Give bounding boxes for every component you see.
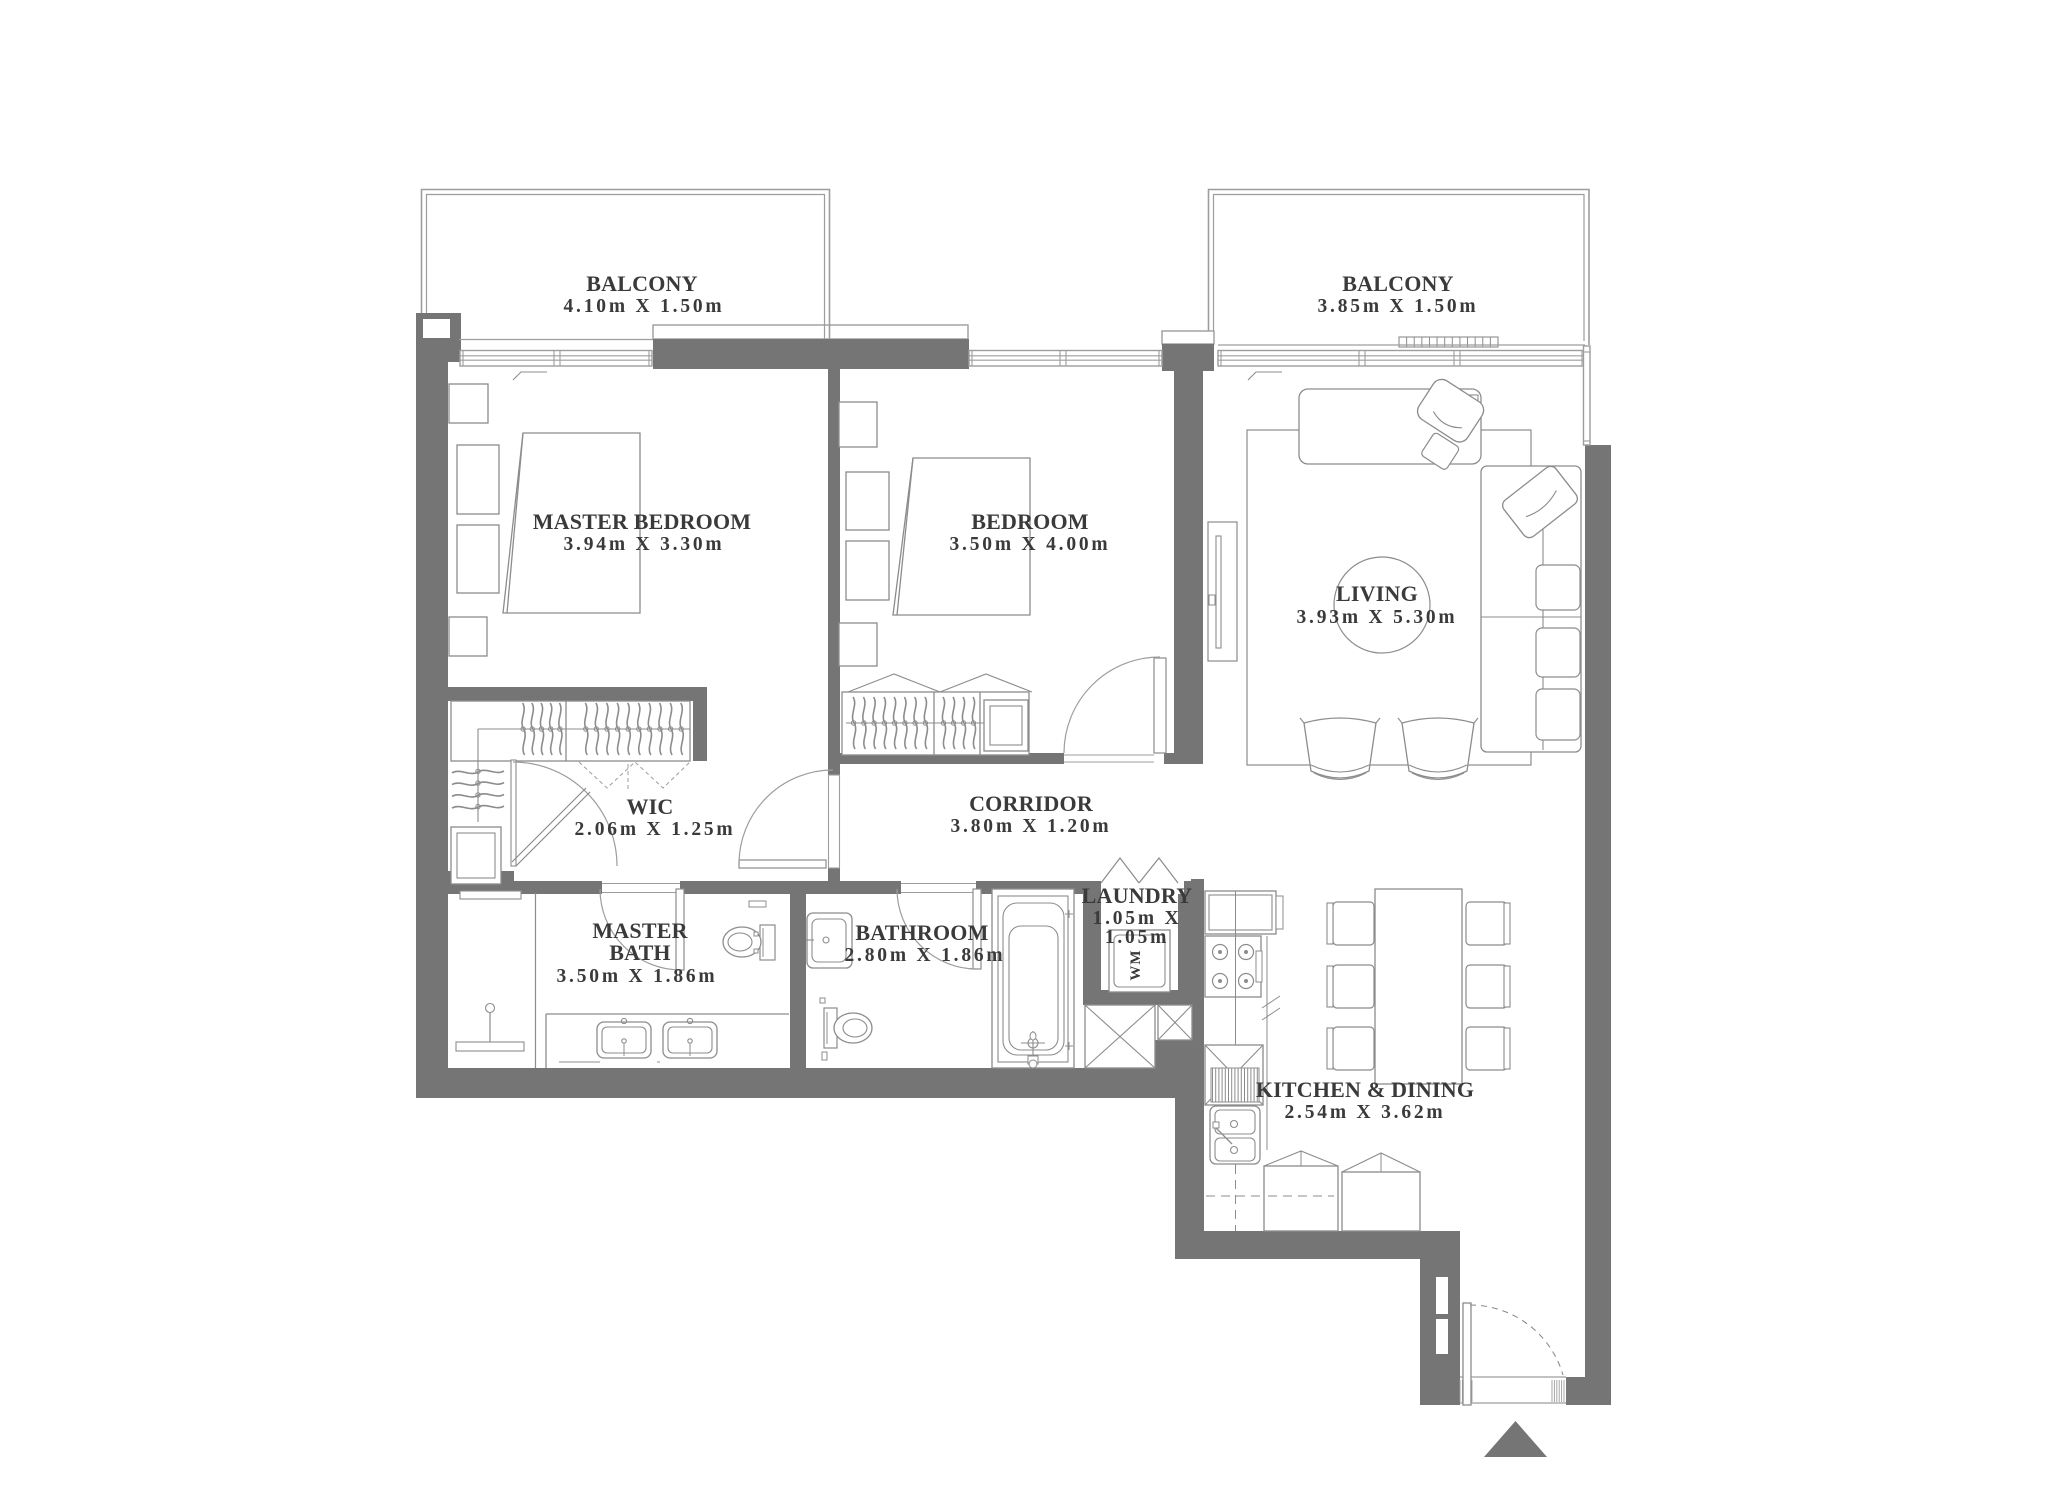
svg-text:BATH: BATH xyxy=(609,940,671,965)
svg-text:3.93m X 5.30m: 3.93m X 5.30m xyxy=(1297,607,1458,628)
svg-text:3.85m X 1.50m: 3.85m X 1.50m xyxy=(1318,296,1479,317)
svg-text:2.06m X 1.25m: 2.06m X 1.25m xyxy=(575,819,736,840)
svg-text:2.80m X 1.86m: 2.80m X 1.86m xyxy=(845,945,1006,966)
svg-text:MASTER BEDROOM: MASTER BEDROOM xyxy=(533,509,752,534)
svg-text:BATHROOM: BATHROOM xyxy=(855,920,988,945)
svg-text:1.05m: 1.05m xyxy=(1105,927,1169,948)
svg-text:WIC: WIC xyxy=(626,794,673,819)
svg-text:4.10m X 1.50m: 4.10m X 1.50m xyxy=(564,296,725,317)
svg-text:BALCONY: BALCONY xyxy=(586,271,697,296)
svg-text:3.94m X 3.30m: 3.94m X 3.30m xyxy=(564,534,725,555)
svg-text:3.80m X 1.20m: 3.80m X 1.20m xyxy=(951,816,1112,837)
svg-text:BALCONY: BALCONY xyxy=(1342,271,1453,296)
svg-text:3.50m X 4.00m: 3.50m X 4.00m xyxy=(950,534,1111,555)
svg-text:2.54m X 3.62m: 2.54m X 3.62m xyxy=(1285,1102,1446,1123)
svg-text:LIVING: LIVING xyxy=(1336,581,1418,606)
svg-text:3.50m X 1.86m: 3.50m X 1.86m xyxy=(557,966,718,987)
svg-text:1.05m X: 1.05m X xyxy=(1093,908,1182,929)
svg-text:CORRIDOR: CORRIDOR xyxy=(969,791,1094,816)
svg-text:BEDROOM: BEDROOM xyxy=(971,509,1089,534)
svg-text:LAUNDRY: LAUNDRY xyxy=(1082,883,1193,908)
svg-text:KITCHEN & DINING: KITCHEN & DINING xyxy=(1256,1077,1474,1102)
svg-text:WM: WM xyxy=(1128,949,1144,980)
